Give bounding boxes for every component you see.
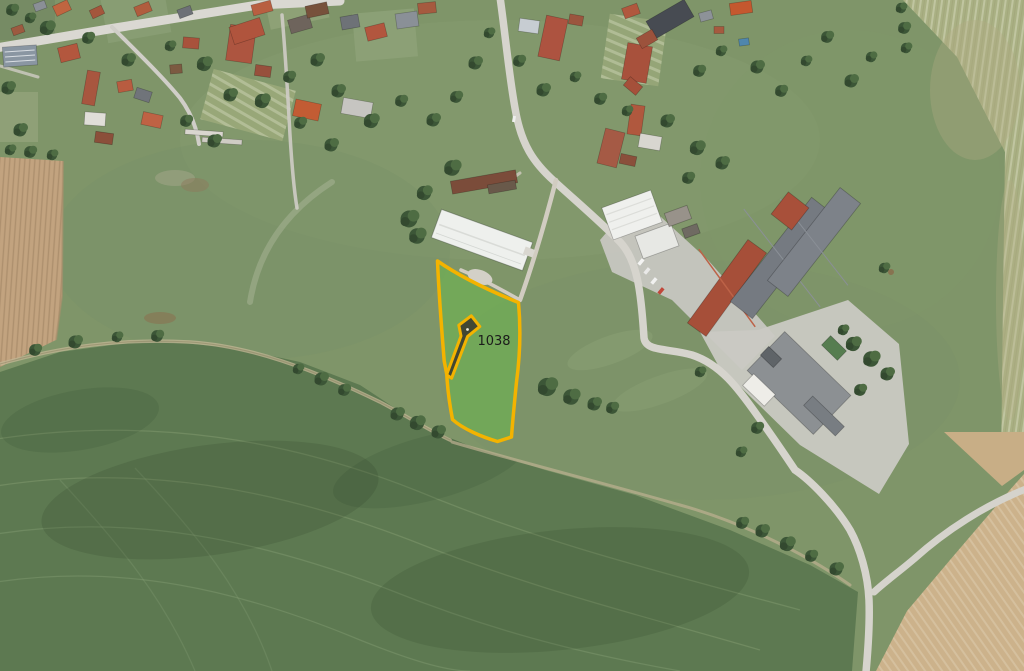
aerial-map-canvas[interactable]: 1038 [0,0,1024,671]
garden-pool [739,38,750,46]
blue-gray-hall [2,45,37,67]
tan-field-top-left [0,157,63,367]
parcel-number-label: 1038 [477,334,510,349]
dirt-patch [888,269,894,275]
shed-dot [466,328,469,331]
aerial-scene: 1038 [0,0,1024,671]
